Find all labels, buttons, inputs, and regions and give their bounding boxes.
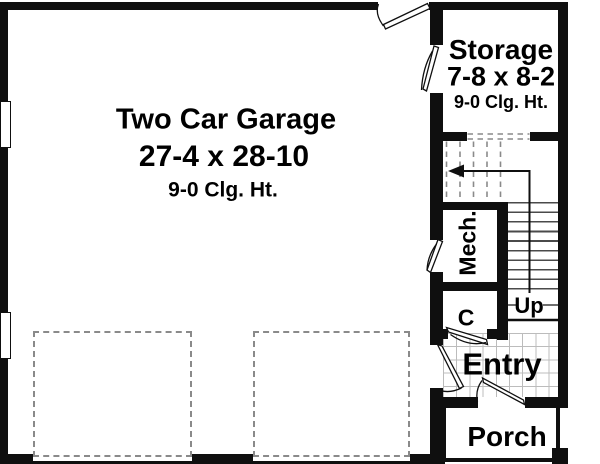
door-mech (427, 240, 443, 273)
stairs-up-label: Up (514, 295, 543, 317)
wall-mech-bottom (430, 282, 508, 291)
garage-dims-label: 27-4 x 28-10 (139, 142, 309, 172)
wall-storage-bottom-right (530, 132, 558, 141)
wall-right (558, 2, 568, 408)
storage-room-label: Storage (449, 36, 553, 64)
wall-closet-bottom-left (430, 329, 448, 339)
storage-ceiling-label: 9-0 Clg. Ht. (454, 93, 548, 111)
wall-garage-stair-mid (430, 93, 443, 240)
entry-room-label: Entry (462, 349, 541, 380)
window-left-upper (0, 101, 11, 148)
wall-entry-bottom-left (430, 397, 478, 408)
wall-entry-bottom-right (525, 397, 558, 408)
garage-door-sill-left (33, 461, 192, 464)
wall-bottom-segment-2 (192, 454, 253, 464)
garage-ceiling-label: 9-0 Clg. Ht. (168, 180, 278, 201)
garage-door-dashed-right (253, 331, 410, 457)
porch-wall-left (441, 408, 446, 462)
porch-wall-bottom (441, 458, 560, 463)
garage-room-label: Two Car Garage (116, 106, 336, 135)
stair-flight-dashed-lines (447, 134, 530, 200)
door-storage (422, 46, 439, 91)
wall-mech-stair (497, 202, 508, 340)
wall-bottom-segment-1 (0, 454, 33, 464)
wall-top-right-of-door (429, 2, 568, 10)
wall-closet-bottom-right (487, 329, 508, 339)
window-left-lower (0, 312, 11, 359)
garage-door-sill-right (253, 461, 410, 464)
storage-dims-label: 7-8 x 8-2 (447, 64, 555, 91)
wall-top-left-of-door (0, 2, 378, 10)
floor-plan: Two Car Garage 27-4 x 28-10 9-0 Clg. Ht.… (0, 0, 600, 464)
wall-storage-bottom-left (430, 132, 467, 141)
porch-label: Porch (467, 423, 546, 451)
stair-treads (508, 202, 558, 297)
wall-garage-storage-upper (430, 10, 443, 45)
closet-label: C (458, 307, 475, 330)
garage-door-dashed-left (33, 331, 192, 457)
mech-room-label: Mech. (457, 210, 480, 275)
wall-left (0, 2, 8, 464)
porch-pillar (552, 448, 568, 464)
door-garage-top (377, 4, 430, 30)
